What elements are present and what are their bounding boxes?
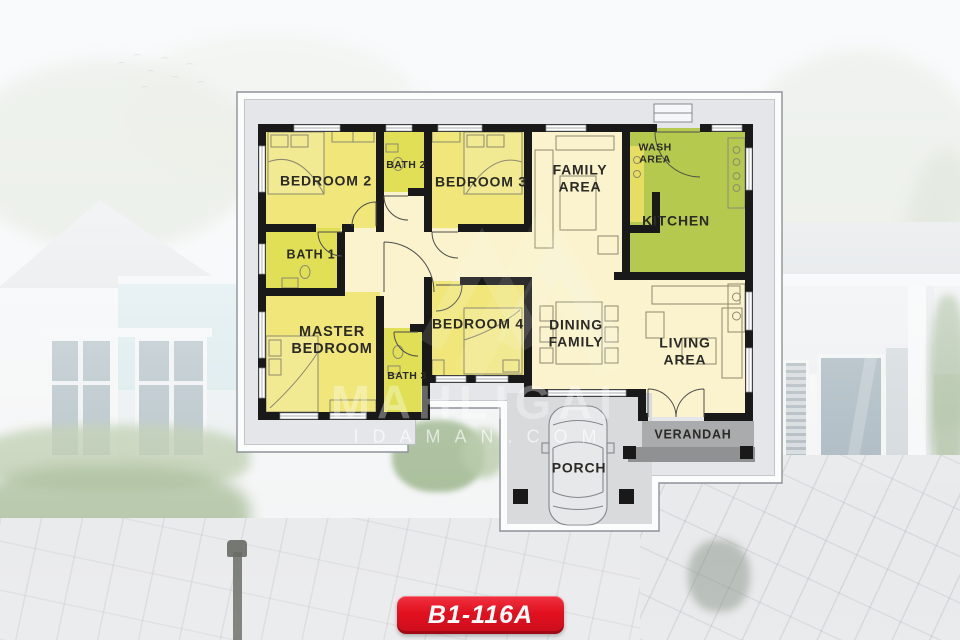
room-label-porch: PORCH	[552, 460, 607, 477]
room-label-bath2: BATH 2	[386, 159, 426, 171]
room-label-bedroom3: BEDROOM 3	[435, 174, 527, 191]
room-label-dining-family: DINING FAMILY	[549, 316, 604, 349]
dining-line1: DINING	[549, 316, 604, 333]
watermark-site: IDAMAN.COM	[354, 427, 611, 448]
poster-scene: BEDROOM 2 BATH 2 BEDROOM 3 FAMILY AREA W…	[0, 0, 960, 640]
water-tank	[654, 104, 692, 122]
living-line1: LIVING	[659, 334, 710, 351]
room-label-kitchen: KITCHEN	[642, 213, 710, 230]
room-label-bedroom2: BEDROOM 2	[280, 173, 372, 190]
wash-line1: WASH	[638, 142, 671, 154]
living-line2: AREA	[659, 351, 710, 368]
room-label-living-area: LIVING AREA	[659, 334, 710, 367]
watermark-brand: MAHLIGAI	[331, 375, 619, 430]
dining-line2: FAMILY	[549, 333, 604, 350]
verandah-step	[628, 447, 755, 462]
plan-code-badge: B1-116A	[397, 596, 564, 634]
master-line2: BEDROOM	[291, 341, 372, 358]
master-line1: MASTER	[291, 324, 372, 341]
room-label-family-area: FAMILY AREA	[553, 161, 608, 194]
family-line1: FAMILY	[553, 161, 608, 178]
wash-line2: AREA	[638, 154, 671, 166]
family-line2: AREA	[553, 178, 608, 195]
room-label-wash-area: WASH AREA	[638, 142, 671, 167]
room-label-master-bedroom: MASTER BEDROOM	[291, 324, 372, 358]
room-label-bedroom4: BEDROOM 4	[432, 316, 524, 333]
room-label-bath1: BATH 1	[286, 248, 335, 263]
room-label-verandah: VERANDAH	[654, 428, 731, 443]
